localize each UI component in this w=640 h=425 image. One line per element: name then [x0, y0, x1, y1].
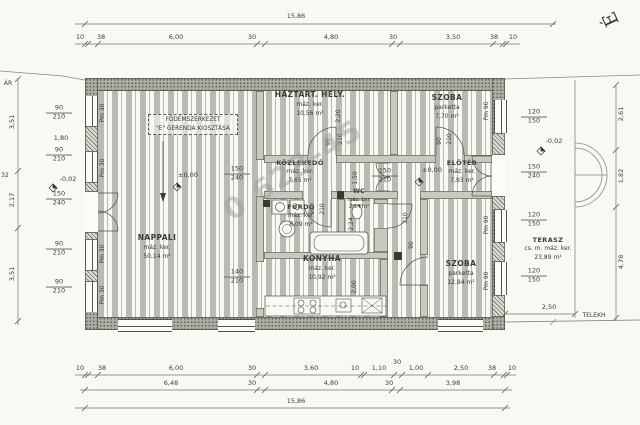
- dim: 10: [508, 365, 516, 372]
- opening-size: 90210: [46, 279, 72, 296]
- window: [438, 319, 483, 332]
- north-arrow: É: [598, 8, 624, 30]
- dim: 2,24: [349, 217, 355, 230]
- parapet-marker: Pm 30: [100, 103, 106, 122]
- opening-size: 140210: [224, 269, 250, 286]
- dim: 2,17: [9, 193, 16, 207]
- dim: 38: [488, 365, 496, 372]
- dim: 1,80: [54, 135, 68, 142]
- room-area: 23,89 m²: [524, 254, 571, 263]
- wall-segment: [420, 199, 428, 255]
- dim: 4,80: [324, 34, 338, 41]
- wall-segment: [420, 285, 428, 317]
- parapet-marker: Pm 30: [100, 244, 106, 263]
- dim: 1,00: [409, 365, 423, 372]
- dim: 4,78: [618, 255, 625, 269]
- dim: 38: [97, 34, 105, 41]
- room-label-kozlekedo: KÖZLEKEDŐ máz. ker. 7,65 m²: [276, 159, 324, 186]
- dim: 6,00: [169, 34, 183, 41]
- opening-size: 120150: [521, 212, 547, 229]
- wall-segment: [420, 191, 492, 199]
- dim: 2,50: [454, 365, 468, 372]
- opening-size: 120150: [521, 268, 547, 285]
- room-finish: máz. ker.: [347, 197, 371, 205]
- dim: 3,51: [9, 115, 16, 129]
- room-label-szoba1: SZOBA parketta 7,70 m²: [432, 93, 463, 121]
- opening-size: 150240: [521, 164, 547, 181]
- dim: 6,48: [164, 380, 178, 387]
- opening-size: 90210: [46, 105, 72, 122]
- wall-segment: [338, 199, 345, 252]
- room-area: 8,09 m²: [287, 221, 315, 230]
- room-name: KÖZLEKEDŐ: [276, 159, 324, 168]
- wall-segment: [374, 228, 388, 252]
- room-name: TERASZ: [524, 236, 571, 245]
- window: [494, 262, 507, 295]
- room-finish: máz. ker.: [138, 244, 177, 253]
- door-size: 90: [437, 137, 443, 145]
- door-size: 210: [403, 212, 409, 223]
- dim: 2,20: [336, 109, 342, 122]
- dim: 38: [98, 365, 106, 372]
- room-finish: máz. ker.: [447, 168, 477, 177]
- room-name: NAPPALI: [138, 233, 177, 244]
- opening-size: 150240: [46, 191, 72, 208]
- dim: 6,00: [169, 365, 183, 372]
- dim: 3,50: [446, 34, 460, 41]
- wall-pier: [85, 182, 98, 192]
- room-label-eloter: ELŐTÉR máz. ker. 7,93 m²: [447, 159, 477, 186]
- room-area: 50,14 m²: [138, 253, 177, 262]
- room-name: ELŐTÉR: [447, 159, 477, 168]
- parapet-marker: Pm 90: [484, 101, 490, 120]
- dim-total-bottom: 15,86: [287, 398, 306, 405]
- room-label-konyha: KONYHA máz. ker. 10,92 m²: [303, 254, 341, 282]
- parapet-marker: Pm 90: [484, 215, 490, 234]
- wall-segment: [336, 155, 436, 163]
- opening-size: 90210: [46, 241, 72, 258]
- parapet-marker: Pm 90: [484, 271, 490, 290]
- entry-door-opening: [492, 155, 505, 196]
- dim: 30: [248, 365, 256, 372]
- wall-segment: [256, 91, 264, 160]
- room-area: 12,84 m²: [446, 279, 477, 288]
- room-finish: máz. ker.: [303, 265, 341, 274]
- dim: 10: [509, 34, 517, 41]
- door-size: 210: [447, 133, 453, 144]
- opening-size: 150210: [372, 168, 398, 185]
- room-finish: parketta: [446, 270, 477, 279]
- room-finish: cs. m. máz. ker.: [524, 245, 571, 254]
- dim: 4,80: [324, 380, 338, 387]
- dim: 2,50: [542, 304, 556, 311]
- room-name: SZOBA: [432, 93, 463, 104]
- wall-segment: [256, 308, 264, 317]
- wall-segment: [264, 191, 303, 199]
- window: [494, 100, 507, 133]
- wall-pier: [85, 232, 98, 240]
- wall-pier: [492, 295, 505, 317]
- window: [85, 152, 98, 182]
- dim: 30: [248, 34, 256, 41]
- wall-pier: [492, 242, 505, 262]
- dim: 30: [389, 34, 397, 41]
- boundary-label-right: TELEKH: [582, 313, 605, 319]
- room-label-nappali: NAPPALI máz. ker. 50,14 m²: [138, 233, 177, 261]
- note-line1: FÖDÉMSZERKEZET: [149, 116, 237, 125]
- window: [85, 240, 98, 270]
- room-finish: máz. ker.: [276, 168, 324, 177]
- note-line2: "E" GERENDA KIOSZTÁSA: [149, 125, 237, 134]
- floor-plan-sheet: FÖDÉMSZERKEZET "E" GERENDA KIOSZTÁSA NAP…: [0, 0, 640, 425]
- door-size: 90: [409, 241, 415, 249]
- dim: 1,82: [618, 169, 625, 183]
- wall-segment: [390, 91, 398, 155]
- window: [494, 210, 507, 242]
- dim: 3,98: [446, 380, 460, 387]
- parapet-marker: Pm 30: [100, 285, 106, 304]
- opening-size: 150240: [224, 166, 250, 183]
- room-name: HÁZTART. HELY.: [275, 90, 345, 101]
- opening-size: 90210: [46, 147, 72, 164]
- level-mark: -0,02: [60, 176, 77, 183]
- room-label-terasz: TERASZ cs. m. máz. ker. 23,89 m²: [524, 236, 571, 263]
- level-mark: -0,02: [546, 138, 563, 145]
- window: [85, 282, 98, 312]
- room-finish: parketta: [432, 104, 463, 113]
- dim-total-top: 15,86: [287, 13, 306, 20]
- wall-pier: [85, 126, 98, 152]
- parapet-marker: Pm 30: [100, 158, 106, 177]
- door-size: 210: [320, 203, 326, 214]
- wall-segment: [256, 196, 264, 262]
- terrace-door-opening: [218, 319, 255, 332]
- room-name: SZOBA: [446, 259, 477, 270]
- wall-pier: [492, 196, 505, 210]
- dim: 10: [76, 365, 84, 372]
- dim: 1,50: [353, 171, 359, 184]
- room-area: 7,65 m²: [276, 177, 324, 186]
- dim: 30: [248, 380, 256, 387]
- door-size: 90: [326, 138, 332, 146]
- boundary-label-left: ÁR: [4, 81, 12, 87]
- wall-pier: [492, 133, 505, 155]
- door-size: 210: [338, 133, 344, 144]
- dim: 1,10: [372, 365, 386, 372]
- room-label-wc: WC máz. ker. 2,14 m²: [347, 188, 371, 212]
- dim: 2,61: [618, 107, 625, 121]
- dim: 32: [1, 173, 9, 179]
- dim: 3,51: [9, 267, 16, 281]
- room-label-szoba2: SZOBA parketta 12,84 m²: [446, 259, 477, 287]
- wall-segment: [380, 259, 388, 317]
- dim: 30: [385, 380, 393, 387]
- wall-segment: [374, 199, 388, 204]
- room-name: KONYHA: [303, 254, 341, 265]
- opening-size: 120150: [521, 109, 547, 126]
- dim: 30: [393, 359, 401, 366]
- window: [85, 96, 98, 126]
- door-size: 90: [310, 207, 316, 215]
- entry-door-opening: [85, 192, 98, 232]
- room-name: WC: [347, 188, 371, 197]
- dim: 38: [490, 34, 498, 41]
- room-area: 7,93 m²: [447, 177, 477, 186]
- room-area: 2,14 m²: [347, 204, 371, 212]
- dim: 3,60: [304, 365, 318, 372]
- window: [118, 319, 172, 332]
- room-area: 10,92 m²: [303, 274, 341, 283]
- dim: 2,00: [352, 280, 358, 293]
- structure-note: FÖDÉMSZERKEZET "E" GERENDA KIOSZTÁSA: [148, 114, 238, 135]
- wall-pier: [85, 270, 98, 282]
- level-mark: ±0,00: [178, 172, 198, 179]
- room-finish: máz. ker.: [275, 101, 345, 110]
- room-area: 7,70 m²: [432, 113, 463, 122]
- dim: 10: [76, 34, 84, 41]
- dim: 10: [351, 365, 359, 372]
- level-mark: ±0,00: [422, 167, 442, 174]
